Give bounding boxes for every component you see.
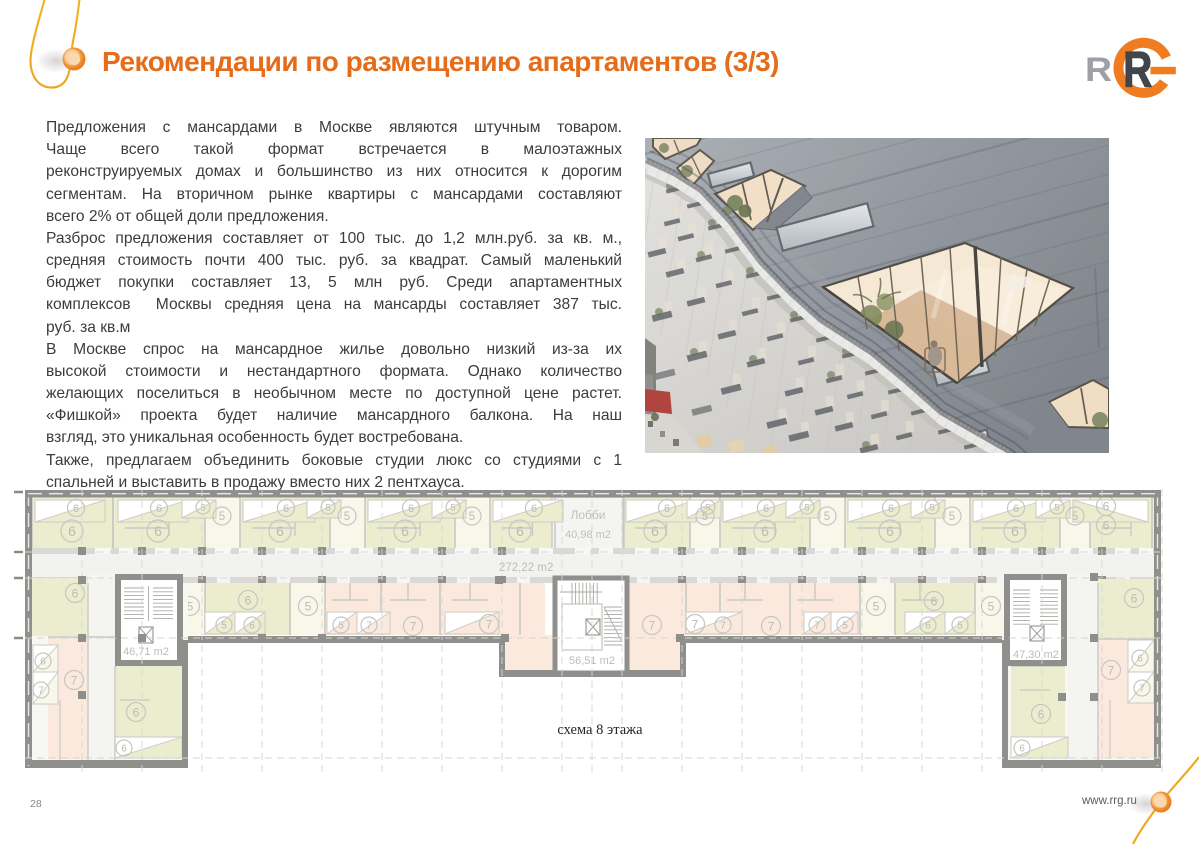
svg-text:6: 6: [888, 503, 894, 515]
svg-text:Лобби: Лобби: [571, 508, 606, 522]
svg-text:6: 6: [763, 503, 769, 515]
svg-text:6: 6: [133, 705, 140, 719]
svg-text:6: 6: [121, 744, 127, 755]
svg-text:6: 6: [886, 523, 894, 539]
svg-text:6: 6: [1103, 518, 1110, 532]
svg-text:5: 5: [344, 511, 350, 523]
svg-text:6: 6: [245, 593, 252, 607]
svg-text:7: 7: [1139, 684, 1145, 695]
svg-text:6: 6: [516, 523, 524, 539]
svg-text:7: 7: [410, 619, 417, 633]
svg-text:5: 5: [988, 599, 995, 613]
svg-text:46,71 m2: 46,71 m2: [123, 646, 169, 658]
svg-text:47,30 m2: 47,30 m2: [1013, 649, 1059, 661]
svg-text:6: 6: [283, 503, 289, 515]
svg-text:5: 5: [949, 511, 955, 523]
svg-text:5: 5: [450, 502, 455, 513]
svg-text:6: 6: [925, 621, 931, 632]
svg-text:7: 7: [692, 617, 699, 631]
svg-text:7: 7: [814, 621, 820, 632]
svg-text:6: 6: [931, 594, 938, 608]
svg-text:6: 6: [68, 523, 76, 539]
svg-text:6: 6: [1011, 523, 1019, 539]
svg-text:6: 6: [156, 503, 162, 515]
svg-text:7: 7: [649, 618, 656, 632]
svg-text:5: 5: [325, 502, 330, 513]
svg-text:5: 5: [929, 502, 934, 513]
svg-text:5: 5: [221, 621, 227, 632]
svg-text:272,22 m2: 272,22 m2: [499, 562, 553, 574]
svg-text:5: 5: [200, 502, 205, 513]
svg-text:R: R: [1123, 41, 1152, 97]
svg-text:6: 6: [249, 621, 255, 632]
svg-text:схема 8 этажа: схема 8 этажа: [557, 722, 643, 738]
svg-text:6: 6: [154, 523, 162, 539]
svg-text:7: 7: [768, 619, 775, 633]
svg-text:5: 5: [842, 621, 848, 632]
svg-text:7: 7: [486, 617, 493, 631]
svg-text:6: 6: [72, 586, 79, 600]
svg-text:6: 6: [1019, 744, 1025, 755]
svg-text:5: 5: [219, 511, 225, 523]
svg-text:5: 5: [305, 599, 312, 613]
svg-text:R: R: [1085, 51, 1112, 89]
svg-text:5: 5: [1072, 511, 1078, 523]
svg-text:7: 7: [1108, 663, 1115, 677]
svg-text:6: 6: [1013, 503, 1019, 515]
svg-text:40,98 m2: 40,98 m2: [565, 529, 611, 541]
svg-text:7: 7: [720, 621, 726, 632]
svg-text:6: 6: [1131, 591, 1138, 605]
svg-text:6: 6: [664, 503, 670, 515]
svg-text:6: 6: [1038, 707, 1045, 721]
svg-text:5: 5: [1054, 502, 1059, 513]
svg-text:6: 6: [1137, 654, 1143, 665]
svg-text:5: 5: [824, 511, 830, 523]
svg-text:6: 6: [73, 503, 79, 515]
svg-text:6: 6: [761, 523, 769, 539]
svg-text:6: 6: [40, 657, 46, 668]
svg-text:5: 5: [469, 511, 475, 523]
svg-text:5: 5: [338, 621, 344, 632]
svg-text:5: 5: [957, 621, 963, 632]
svg-text:7: 7: [38, 686, 44, 697]
svg-text:5: 5: [702, 511, 708, 523]
svg-text:6: 6: [276, 523, 284, 539]
svg-text:5: 5: [873, 599, 880, 613]
svg-text:6: 6: [531, 503, 537, 515]
svg-text:5: 5: [804, 502, 809, 513]
svg-text:6: 6: [401, 523, 409, 539]
svg-text:6: 6: [408, 503, 414, 515]
svg-text:6: 6: [651, 523, 659, 539]
svg-text:6: 6: [1103, 499, 1110, 513]
svg-text:7: 7: [366, 621, 372, 632]
svg-text:7: 7: [71, 673, 78, 687]
